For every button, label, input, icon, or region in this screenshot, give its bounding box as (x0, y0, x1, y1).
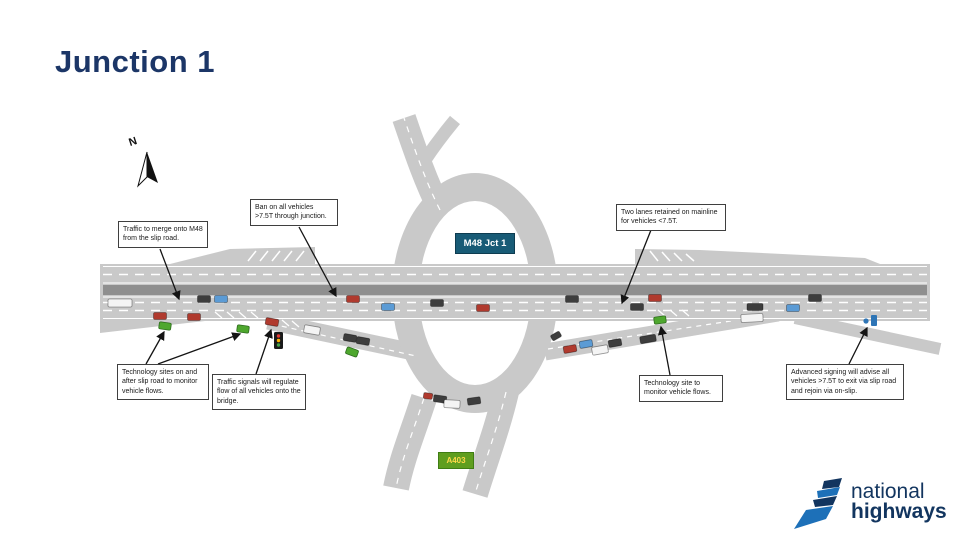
callout-tech-site: Technology site to monitor vehicle flows… (639, 375, 723, 402)
central-reservation (103, 285, 927, 295)
vehicle-red-icon (477, 305, 490, 312)
leader-line-tech-sites-1 (146, 332, 164, 364)
vehicle-dark-icon (566, 296, 579, 303)
callout-ban: Ban on all vehicles >7.5T through juncti… (250, 199, 338, 226)
vehicle-red-icon (423, 392, 433, 399)
vehicle-dark-icon (809, 295, 822, 302)
north-arrow-icon (138, 152, 158, 186)
westbound-merge-band-left (170, 247, 315, 264)
logo-wordmark-line1: national (851, 482, 947, 502)
national-highways-logo: national highways (794, 476, 974, 536)
vehicle-red-icon (188, 314, 201, 321)
vehicle-white-icon (444, 400, 460, 409)
vehicle-red-icon (154, 313, 167, 320)
callout-two-lanes: Two lanes retained on mainline for vehic… (616, 204, 726, 231)
callout-advance: Advanced signing will advise all vehicle… (786, 364, 904, 400)
technology-site-icon (237, 325, 250, 334)
vehicle-blue-icon (382, 304, 395, 311)
technology-site-icon (654, 316, 667, 325)
leader-line-tech-sites-2 (158, 334, 240, 364)
logo-text: national highways (851, 482, 947, 522)
vehicle-red-icon (649, 295, 662, 302)
a-road-badge: A403 (438, 452, 474, 469)
vehicle-dark-icon (198, 296, 211, 303)
vehicle-dark-icon (467, 397, 481, 406)
traffic-signal-icon (274, 332, 283, 349)
vehicle-dark-icon (431, 300, 444, 307)
logo-wordmark-line2: highways (851, 502, 947, 522)
leader-line-signals (256, 330, 271, 374)
vehicle-white-icon (108, 299, 132, 307)
junction-diagram (0, 0, 980, 551)
vehicle-blue-icon (215, 296, 228, 303)
onslip-taper-left (100, 321, 205, 333)
technology-site-icon (159, 322, 172, 331)
callout-merge: Traffic to merge onto M48 from the slip … (118, 221, 208, 248)
vehicle-white-icon (741, 313, 763, 322)
slide: Junction 1 (0, 0, 980, 551)
junction-badge: M48 Jct 1 (455, 233, 515, 254)
callout-tech-sites: Technology sites on and after slip road … (117, 364, 209, 400)
westbound-merge-band-right (635, 249, 880, 264)
vehicle-dark-icon (747, 304, 763, 311)
north-road-branch (425, 120, 455, 160)
vehicle-dark-icon (631, 304, 644, 311)
callout-signals: Traffic signals will regulate flow of al… (212, 374, 306, 410)
vehicle-red-icon (347, 296, 360, 303)
vehicle-blue-icon (787, 305, 800, 312)
